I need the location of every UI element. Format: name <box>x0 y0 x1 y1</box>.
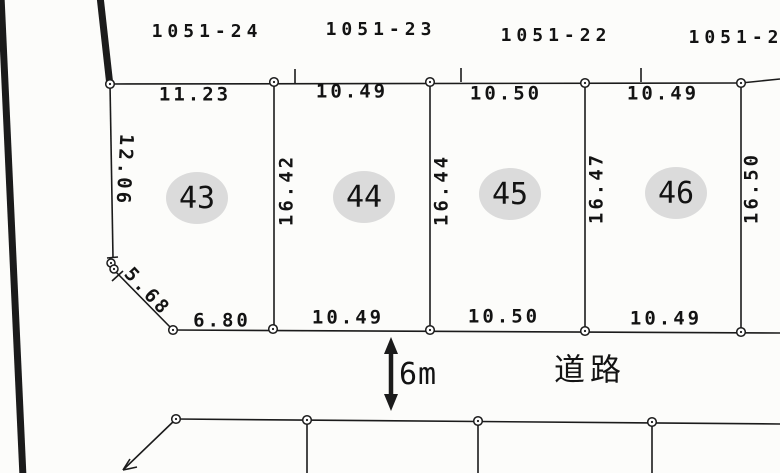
side-dimension-label: 16.47 <box>588 152 607 224</box>
top-dimension-label: 10.50 <box>470 85 542 104</box>
lower-block-lines <box>123 419 780 473</box>
lot-number-badge: 45 <box>479 168 541 220</box>
top-dimension-label: 10.49 <box>316 83 388 102</box>
side-dimension-label: 16.50 <box>743 152 762 224</box>
bottom-dimension-label: 10.49 <box>630 310 702 329</box>
bottom-dimension-label: 10.49 <box>312 309 384 328</box>
road-width-arrow-icon <box>384 337 398 411</box>
cadastral-survey-map: 1051-24 1051-23 1051-22 1051-2 11.23 10.… <box>0 0 780 473</box>
lot-number-badge: 44 <box>333 171 395 223</box>
left-edge-dimension-label: 12.06 <box>113 133 136 206</box>
lot-number-badge: 43 <box>166 172 228 224</box>
bottom-dimension-label: 6.80 <box>193 312 251 331</box>
parcel-number-label: 1051-22 <box>501 27 612 45</box>
top-dimension-label: 11.23 <box>159 86 231 105</box>
side-dimension-label: 16.44 <box>433 154 452 226</box>
lot-number-badge: 46 <box>645 167 707 219</box>
parcel-number-label: 1051-2 <box>688 29 780 47</box>
bottom-dimension-label: 10.50 <box>468 308 540 327</box>
side-dimension-label: 16.42 <box>278 154 297 226</box>
road-width-label: 6m <box>399 360 437 390</box>
site-border-lines <box>1 0 110 473</box>
top-dimension-label: 10.49 <box>627 85 699 104</box>
parcel-number-label: 1051-23 <box>326 21 437 39</box>
parcel-number-label: 1051-24 <box>152 23 263 41</box>
road-name-label: 道路 <box>554 356 626 387</box>
survey-linework <box>0 0 780 473</box>
